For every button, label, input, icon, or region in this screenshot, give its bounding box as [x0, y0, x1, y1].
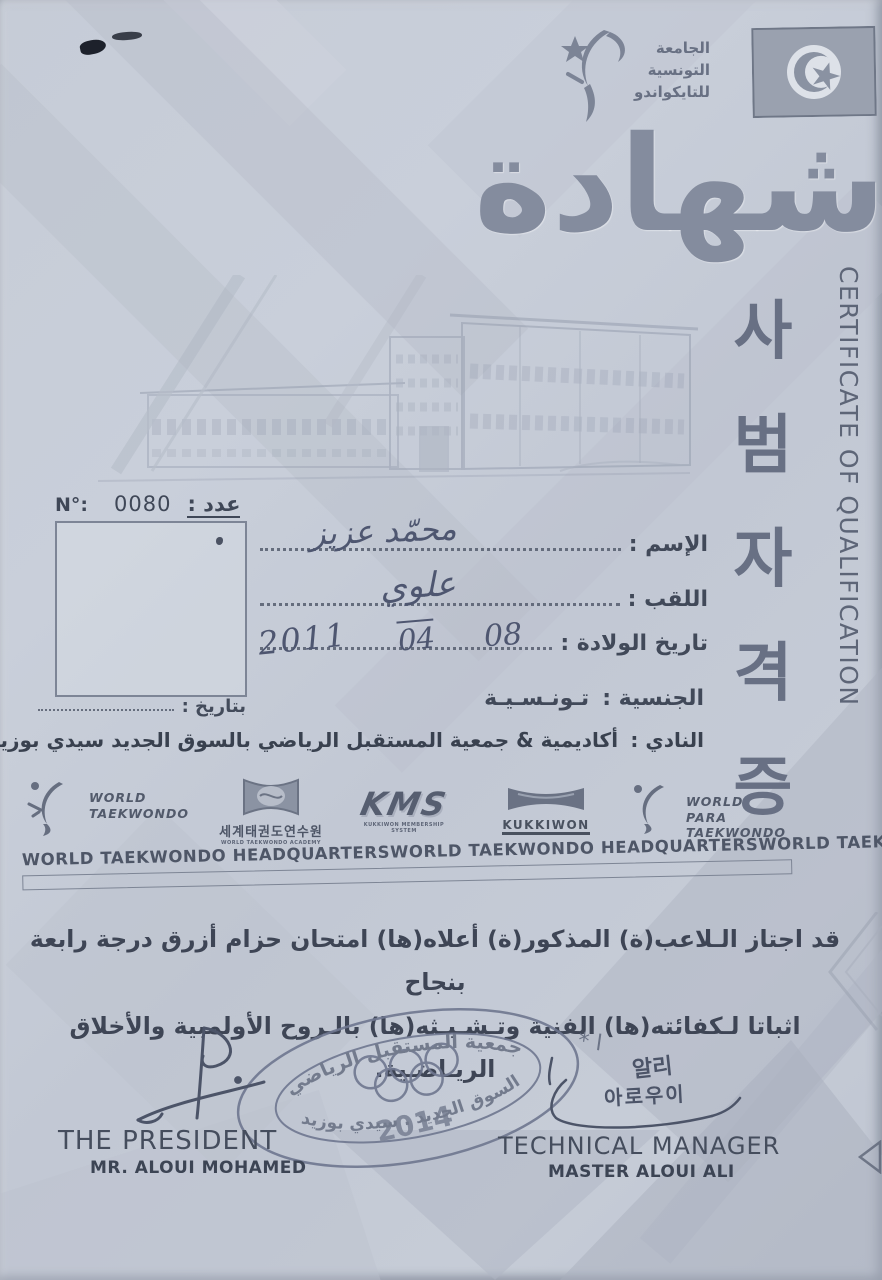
nationality-value: تـونـسـيـة	[484, 686, 589, 711]
kms-sublabel: KUKKIWON MEMBERSHIP SYSTEM	[356, 822, 452, 834]
name-handwritten: محمّد عزيز	[309, 509, 457, 552]
body-line-1: قد اجتاز الـلاعب(ة) المذكور(ة) أعلاه(ها)…	[12, 918, 858, 1005]
photo-date-row: بتاريخ :	[30, 696, 246, 717]
edge-triangle-mark	[856, 1140, 882, 1174]
wta-korean-label: 세계태권도연수원	[206, 821, 336, 840]
name-label: الإسم :	[629, 532, 708, 557]
wt-label-line: TAEKWONDO	[89, 806, 189, 822]
building-photo	[90, 275, 705, 505]
surname-label: اللقب :	[628, 587, 708, 612]
technical-hangul-line2: 아로우이	[603, 1078, 686, 1111]
logo-world-para-taekwondo: WORLD PARA TAEKWONDO	[628, 782, 798, 838]
federation-name-line: التونسية	[640, 60, 710, 82]
technical-title: TECHNICAL MANAGER	[498, 1132, 780, 1160]
ink-mark	[112, 31, 142, 41]
dotted-line	[38, 709, 174, 711]
federation-name-line: للتايكواندو	[640, 82, 710, 104]
certificate-title-arabic: شهادة	[474, 108, 882, 262]
serial-row: N°: 0080 عدد :	[55, 492, 255, 518]
federation-name-line: الجامعة	[640, 38, 710, 60]
wt-label-line: WORLD	[89, 790, 189, 806]
world-taekwondo-icon	[25, 778, 81, 836]
kms-wordmark: KMS	[353, 788, 456, 820]
photo-box	[55, 521, 247, 697]
president-name: MR. ALOUI MOHAMED	[90, 1158, 306, 1178]
kukkiwon-icon	[504, 784, 588, 814]
dob-month-handwritten: 04	[397, 620, 437, 657]
korean-char: 범	[734, 394, 793, 486]
wpt-label-line: WORLD	[686, 794, 798, 810]
surname-handwritten: علوي	[379, 564, 457, 608]
world-para-taekwondo-icon	[628, 782, 678, 834]
club-label: النادي :	[630, 728, 704, 752]
headquarters-strip: WORLD TAEKWONDO HEADQUARTERS WORLD TAEKW…	[22, 834, 823, 891]
logo-world-taekwondo-academy: 세계태권도연수원 WORLD TAEKWONDO ACADEMY	[206, 776, 336, 840]
certificate-title-korean: 사 범 자 격 증	[720, 280, 806, 828]
korean-char: 자	[734, 508, 793, 600]
ink-dot	[216, 537, 223, 545]
tunisia-flag	[751, 26, 877, 118]
headquarters-text: WORLD TAEKWONDO HEADQUARTERS	[390, 835, 759, 862]
kukkiwon-label: KUKKIWON	[502, 818, 589, 835]
president-signature	[112, 1022, 292, 1137]
korean-char: 격	[734, 622, 793, 714]
certificate-title-english: CERTIFICATE OF QUALIFICATION	[834, 266, 863, 786]
serial-number: 0080	[114, 492, 171, 516]
scanned-certificate-page: الجامعة التونسية للتايكواندو شهادة 사 범 자…	[0, 0, 882, 1280]
dob-day-handwritten: 08	[483, 617, 524, 655]
nationality-row: الجنسية : تـونـسـيـة	[484, 686, 704, 711]
club-value: أكاديمية & جمعية المستقبل الرياضي بالسوق…	[0, 728, 618, 752]
chevron-watermark	[822, 912, 882, 1032]
ink-mark	[79, 37, 107, 56]
dob-label: تاريخ الولادة :	[560, 631, 708, 656]
nationality-label: الجنسية :	[602, 686, 704, 711]
logo-kms: KMS KUKKIWON MEMBERSHIP SYSTEM	[356, 788, 452, 834]
logo-kukkiwon: KUKKIWON	[496, 784, 596, 836]
logo-world-taekwondo: WORLD TAEKWONDO	[25, 778, 195, 836]
technical-signature: 알리 아로우이	[536, 1050, 756, 1140]
club-row: النادي : أكاديمية & جمعية المستقبل الريا…	[0, 728, 704, 752]
form-row-surname: اللقب :	[252, 587, 708, 612]
wta-emblem-icon	[238, 776, 304, 818]
serial-no-label: N°:	[55, 494, 88, 516]
headquarters-text: WORLD TAEKWONDO HEADQUARTERS	[22, 843, 391, 870]
president-title: THE PRESIDENT	[58, 1126, 277, 1156]
serial-arabic-label: عدد :	[187, 492, 240, 518]
technical-name: MASTER ALOUI ALI	[548, 1162, 735, 1182]
photo-date-label: بتاريخ :	[182, 696, 246, 717]
korean-char: 사	[734, 280, 793, 372]
